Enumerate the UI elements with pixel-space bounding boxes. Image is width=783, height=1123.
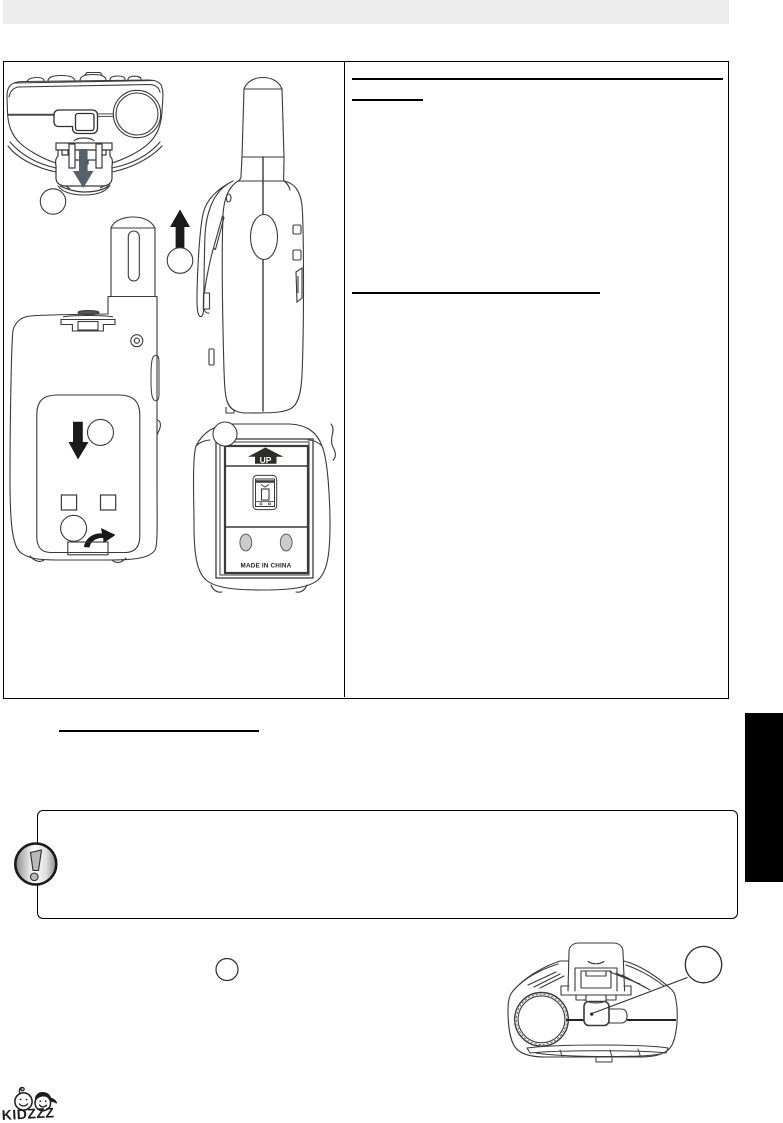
svg-text:MADE IN CHINA: MADE IN CHINA <box>241 563 292 570</box>
svg-text:KIDZZZ: KIDZZZ <box>1 1104 55 1123</box>
svg-text:UP: UP <box>260 455 272 465</box>
